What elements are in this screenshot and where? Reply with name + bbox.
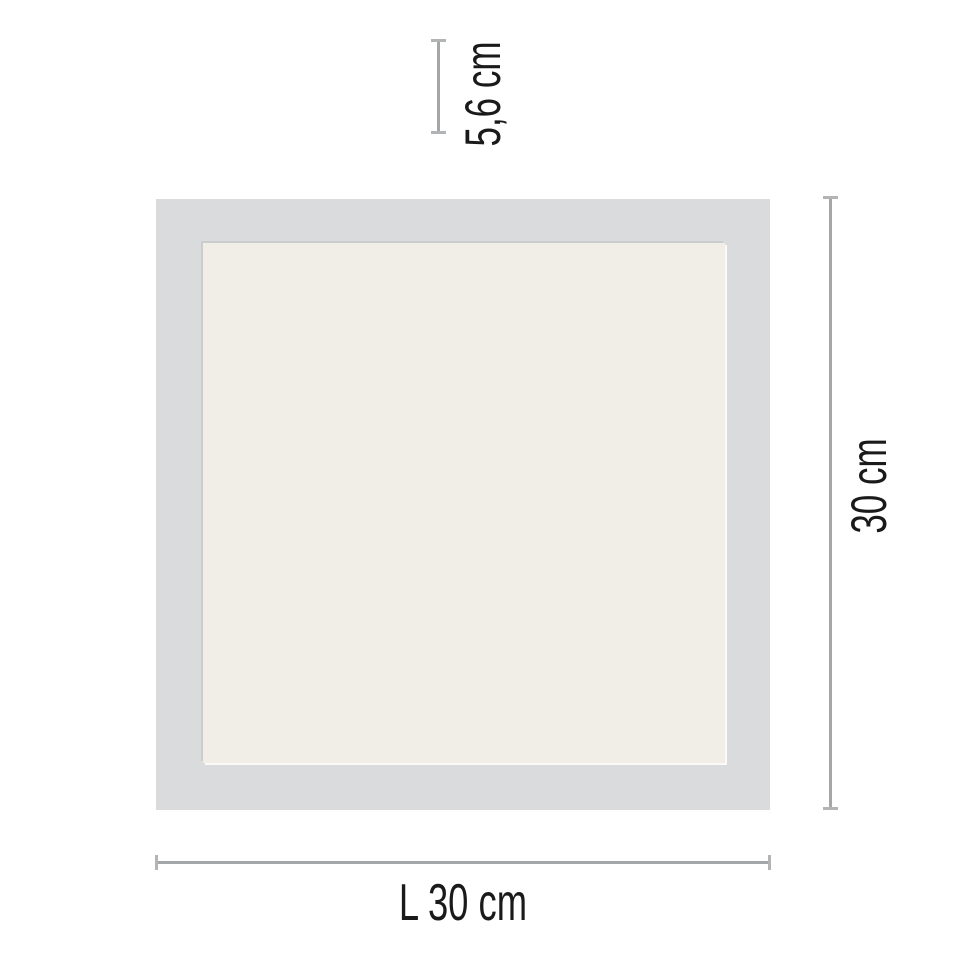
product-dimension-diagram: 5,6 cm 30 cm L 30 cm	[0, 0, 970, 971]
length-dimension-label-text: L 30 cm	[399, 877, 527, 929]
height-dimension-tick-bottom	[823, 807, 838, 810]
panel-frame	[156, 199, 770, 810]
length-dimension-tick-right	[768, 855, 771, 870]
depth-dimension-label-text: 5,6 cm	[458, 41, 508, 146]
length-dimension-line	[157, 861, 770, 864]
length-dimension-label: L 30 cm	[371, 877, 554, 929]
depth-dimension-label: 5,6 cm	[458, 19, 508, 169]
depth-dimension-tick-bottom	[431, 131, 446, 134]
height-dimension-tick-top	[823, 196, 838, 199]
depth-dimension-tick-top	[431, 39, 446, 42]
height-dimension-label-text: 30 cm	[844, 438, 894, 533]
panel-light-face	[203, 243, 725, 763]
depth-dimension-line	[437, 41, 440, 133]
height-dimension-line	[829, 198, 832, 810]
height-dimension-label: 30 cm	[844, 418, 894, 554]
length-dimension-tick-left	[155, 855, 158, 870]
